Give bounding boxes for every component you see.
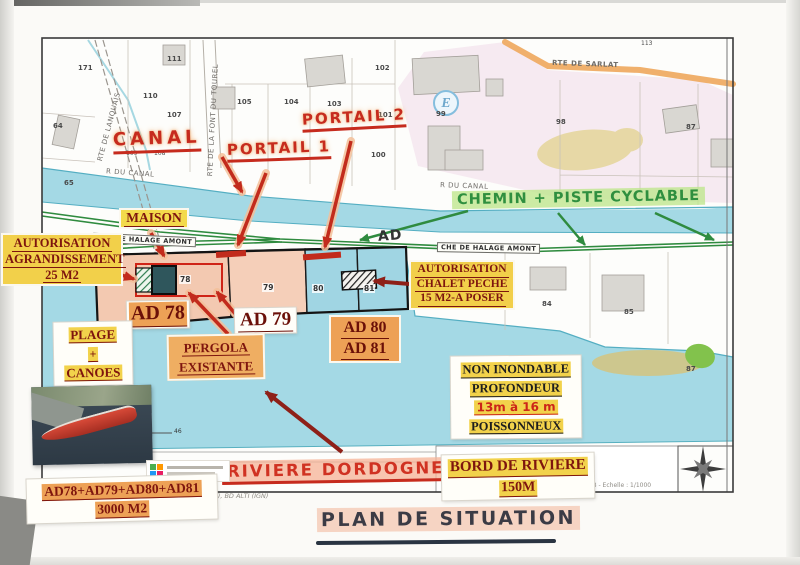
- parcel-number: 100: [371, 151, 386, 159]
- parcel-number: 99: [436, 110, 446, 118]
- parcel-number: 85: [624, 308, 634, 316]
- annotation-non-inondable: NON INONDABLE PROFONDEUR 13m à 16 m POIS…: [451, 355, 582, 438]
- parcel-number: 107: [167, 111, 182, 119]
- annotation-chalet-peche: AUTORISATION CHALET PECHE 15 M2-A POSER: [409, 260, 515, 310]
- scanned-plan-page: RTE DE SARLAT RTE DE LANQUAIS RTE DE LA …: [0, 0, 800, 565]
- scan-edge-top2: [200, 0, 800, 3]
- parcel-number: 110: [143, 92, 158, 100]
- parcel-number: 78: [179, 275, 191, 284]
- road-label-r-du-canal-right: R DU CANAL: [440, 181, 489, 191]
- parcel-number: 98: [556, 118, 566, 126]
- parcel-number: 46: [174, 428, 182, 435]
- parcel-number: 102: [375, 64, 390, 72]
- parcel-number: 104: [284, 98, 299, 106]
- parcel-number: 87: [686, 123, 696, 131]
- parcel-number: 103: [327, 100, 342, 108]
- parcel-number: 65: [64, 179, 74, 187]
- annotation-agrandissement: AUTORISATION AGRANDISSEMENT 25 M2: [1, 233, 123, 286]
- logo-square: [150, 464, 156, 470]
- photo-canoe: [31, 385, 153, 465]
- annotation-riviere-dordogne: RIVIERE DORDOGNE: [222, 457, 450, 485]
- parcel-number: 105: [237, 98, 252, 106]
- annotation-ad80-ad81: AD 80 AD 81: [329, 315, 401, 363]
- parcel-number: 113: [641, 40, 652, 47]
- logo-text-bar: [167, 466, 223, 469]
- annotation-ad-path: AD: [377, 227, 403, 245]
- parcel-number: 80: [312, 284, 324, 293]
- parcel-number: 111: [167, 55, 182, 63]
- annotation-bord-de-riviere: BORD DE RIVIERE 150M: [442, 453, 595, 501]
- annotation-ad79: AD 79: [235, 307, 297, 333]
- annotation-pergola: PERGOLA EXISTANTE: [167, 333, 266, 380]
- parcel-number: 171: [78, 64, 93, 72]
- annotation-portail-1: PORTAIL 1: [227, 137, 332, 163]
- page-title: PLAN DE SITUATION: [317, 506, 580, 532]
- annotation-ad78: AD 78: [127, 300, 189, 328]
- logo-square: [157, 464, 163, 470]
- parcel-number: 87: [686, 365, 696, 373]
- scan-edge-top: [0, 0, 200, 6]
- parcel-number: 64: [53, 122, 63, 130]
- scan-edge-right: [786, 0, 800, 565]
- scan-edge-bottom: [0, 557, 800, 565]
- parcel-number: 79: [262, 283, 274, 292]
- annotation-canal: CANAL: [113, 126, 201, 154]
- annotation-total-surface: AD78+AD79+AD80+AD81 3000 M2: [26, 475, 217, 524]
- halage-label-right: CHE DE HALAGE AMONT: [437, 242, 540, 254]
- annotation-maison: MAISON: [119, 208, 189, 229]
- parcel-number: 84: [542, 300, 552, 308]
- annotation-plage-canoes: PLAGE + CANOES: [53, 321, 132, 385]
- parcel-number: 81: [363, 284, 375, 293]
